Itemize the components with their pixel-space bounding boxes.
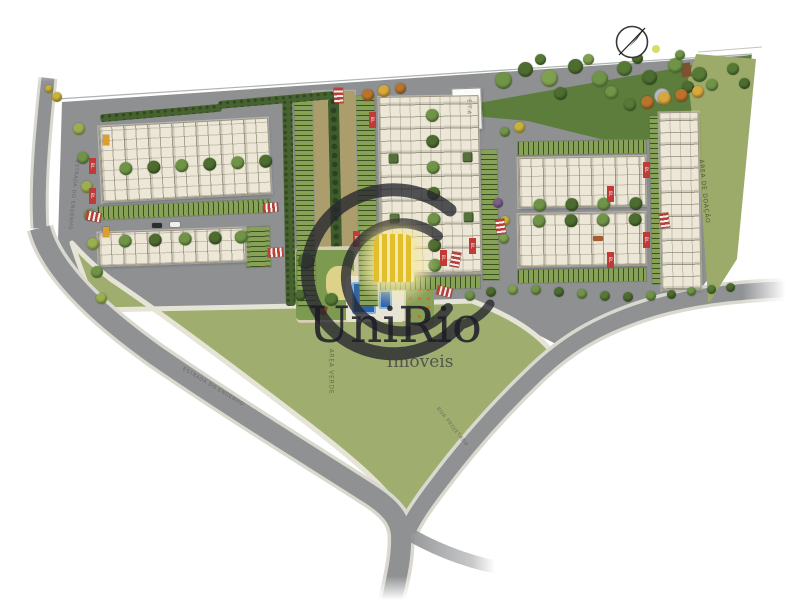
block-tag: BL [607,252,614,268]
tree [119,234,132,247]
tree [325,293,338,306]
tree [175,159,189,173]
tree [378,85,390,97]
crosswalk [263,202,279,212]
tree [658,92,671,105]
parking-strip [294,98,316,306]
kiosk [317,305,327,315]
parking-strip [518,268,646,283]
tree [427,161,440,174]
tree [493,198,503,208]
bush [463,212,473,222]
tree [533,215,546,228]
tree [554,287,564,297]
tree [87,238,99,250]
car [170,222,180,227]
tree [298,253,314,269]
building-block [518,212,647,267]
tree [675,89,688,102]
parking-strip [518,140,646,155]
tree [646,291,656,301]
building-block [658,112,701,291]
tree [641,96,654,109]
block-tag: BL [643,232,650,248]
tree [597,214,610,227]
tree [91,266,103,278]
unit-tag [103,227,109,237]
fade-bottom [362,576,420,604]
tree [687,287,696,296]
crosswalk [659,212,670,228]
block-tag: BL [89,188,96,204]
tree [535,54,546,65]
tree [234,230,247,243]
unit-tag [103,135,109,145]
tree [568,59,583,74]
tree [45,85,53,93]
tree [395,83,406,94]
tree [624,99,636,111]
block-tag: BL [440,250,447,266]
utility-building-label: E.T.A [466,99,472,114]
tree [554,87,567,100]
block-tag: BL [643,162,650,178]
tree [592,71,608,87]
tree [362,89,374,101]
tree [465,291,475,301]
car [593,236,603,241]
tree [706,79,718,91]
building-block [378,95,481,275]
tree [495,72,512,89]
block-tag: BL [369,112,376,128]
tree [259,154,273,168]
tree [96,293,107,304]
tree [600,291,610,301]
tree [231,156,245,170]
tree [623,292,633,302]
north-arrow-icon [608,16,692,68]
block-tag: BL [607,186,614,202]
measure-line [698,47,762,52]
building-block [98,118,272,203]
tree [667,290,676,299]
tree [499,234,509,244]
tree [739,78,750,89]
tree [565,214,578,227]
tree [518,62,533,77]
tree [642,70,657,85]
tree [707,285,716,294]
tree [577,289,587,299]
tree [500,127,510,137]
tree [119,162,133,176]
tree [629,213,642,226]
building-block [97,227,246,266]
building-block [518,156,647,208]
tree [426,135,439,148]
fade-top-left [20,52,82,82]
tree [427,213,440,226]
bush [388,154,398,164]
parking-strip [245,227,270,268]
crosswalk [495,218,506,234]
tree [179,232,192,245]
tree [486,287,496,297]
tree [727,63,739,75]
site-plan: ÁREA DE DOAÇÃO E.T.A ÁREA VERDE ESTRADA … [0,0,800,604]
tree [208,231,221,244]
block-tag: BL [469,238,476,254]
tree [427,187,440,200]
parking-strip [380,276,480,290]
bush [462,152,472,162]
crosswalk [268,247,284,257]
tree [531,285,541,295]
tree [73,123,85,135]
crosswalk [334,88,344,103]
car [152,223,162,228]
tree [605,86,618,99]
block-tag: BL [353,231,360,247]
tree [514,122,525,133]
road-branch [402,530,495,567]
bush [389,214,399,224]
tree [692,67,707,82]
tree [692,86,704,98]
block-tag: BL [89,158,96,174]
kids-pool [379,290,392,309]
tree [583,54,594,65]
tree [726,283,735,292]
tree [426,109,439,122]
green-area-label: ÁREA VERDE [327,349,334,395]
tree [541,70,558,87]
tree [295,290,306,301]
parking-strip [481,150,499,280]
tree [203,157,217,171]
tree [147,160,161,174]
tree [52,92,62,102]
fade-right [742,262,800,318]
tree [149,233,162,246]
tree [508,285,518,295]
